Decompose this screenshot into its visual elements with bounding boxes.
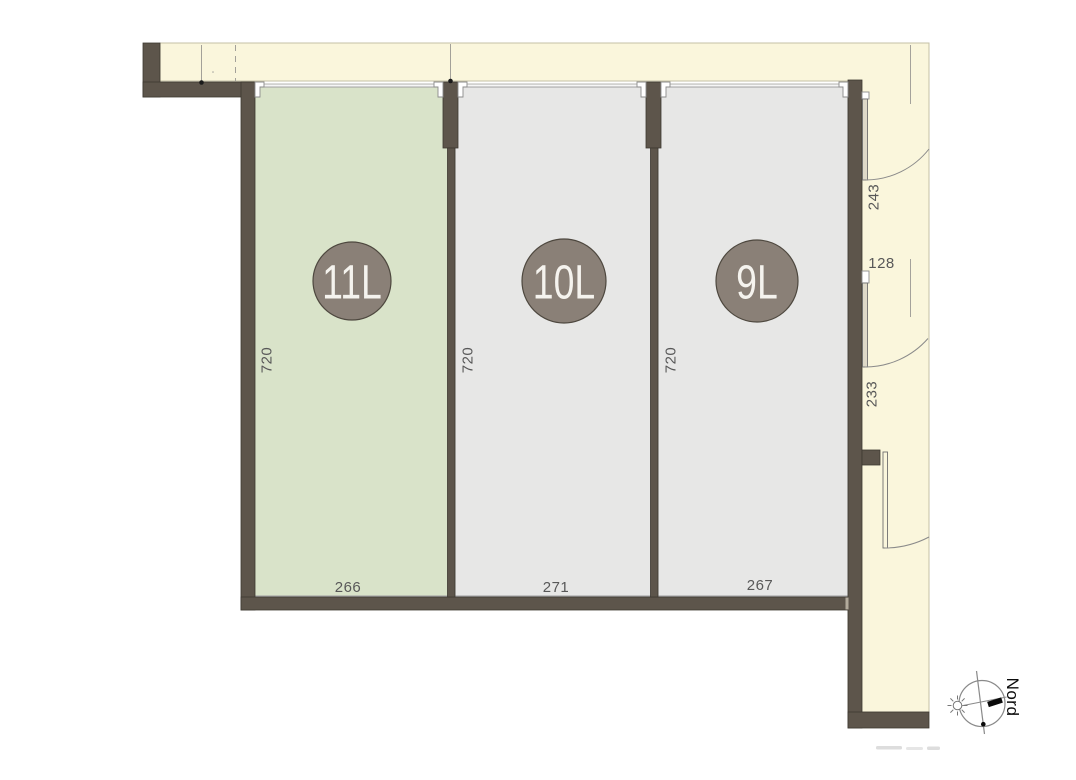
unit-11l-width-label: 266	[335, 579, 362, 596]
wall-divider2-stub	[646, 82, 661, 148]
unit-11l-depth-label: 720	[258, 347, 275, 374]
north-label: Nord	[1003, 678, 1022, 717]
marker-dot	[448, 79, 453, 84]
floor-plan-stage: 11L 10L 9L 720 720 720 266 271 267 243 1…	[0, 0, 1076, 780]
unit-10l-badge-label: 10L	[533, 256, 595, 310]
compass: Nord	[948, 671, 1023, 734]
compass-dot	[981, 722, 986, 727]
door-hinge	[862, 92, 869, 99]
wall-divider1	[448, 148, 456, 597]
wall-left	[241, 82, 255, 610]
unit-11l-badge-label: 11L	[322, 256, 382, 310]
unit-9l-area[interactable]	[658, 87, 848, 596]
unit-9l-width-label: 267	[747, 577, 774, 594]
sun-icon	[948, 696, 968, 716]
wall-divider1-stub	[443, 82, 458, 148]
unit-10l-width-label: 271	[543, 579, 570, 596]
unit-9l-depth-label: 720	[662, 347, 679, 374]
unit-10l-area[interactable]	[455, 87, 651, 596]
wall-divider2	[651, 148, 659, 597]
marker-dot	[199, 80, 204, 85]
unit-9l[interactable]	[658, 87, 848, 596]
marker-speck	[212, 71, 214, 73]
artifact-smudge	[927, 747, 940, 751]
wall-right	[848, 80, 862, 728]
unit-11l-area[interactable]	[254, 87, 448, 596]
unit-10l-depth-label: 720	[459, 347, 476, 374]
garage-door-line	[264, 83, 434, 85]
dimension-label-243: 243	[865, 184, 882, 211]
wall-bottom	[241, 597, 849, 610]
wall-seam	[846, 598, 849, 610]
door-leaf	[863, 99, 868, 180]
wall-door-stub	[862, 450, 880, 465]
garage-door-line	[467, 83, 637, 85]
garage-door-line	[670, 83, 839, 85]
wall-corridor-end-cap	[848, 712, 929, 728]
unit-9l-badge-label: 9L	[736, 256, 778, 310]
floor-plan-canvas: 11L 10L 9L 720 720 720 266 271 267 243 1…	[0, 0, 1076, 780]
dimension-label-128: 128	[868, 255, 895, 272]
unit-10l[interactable]	[455, 87, 651, 596]
door-leaf	[863, 283, 868, 367]
unit-11l[interactable]	[254, 87, 448, 596]
artifact-smudge	[906, 747, 923, 750]
door-leaf	[883, 452, 888, 548]
artifact-smudge	[876, 746, 902, 750]
door-hinge	[862, 271, 869, 283]
dimension-label-233: 233	[863, 381, 880, 408]
wall-top-left-horizontal	[143, 82, 255, 97]
